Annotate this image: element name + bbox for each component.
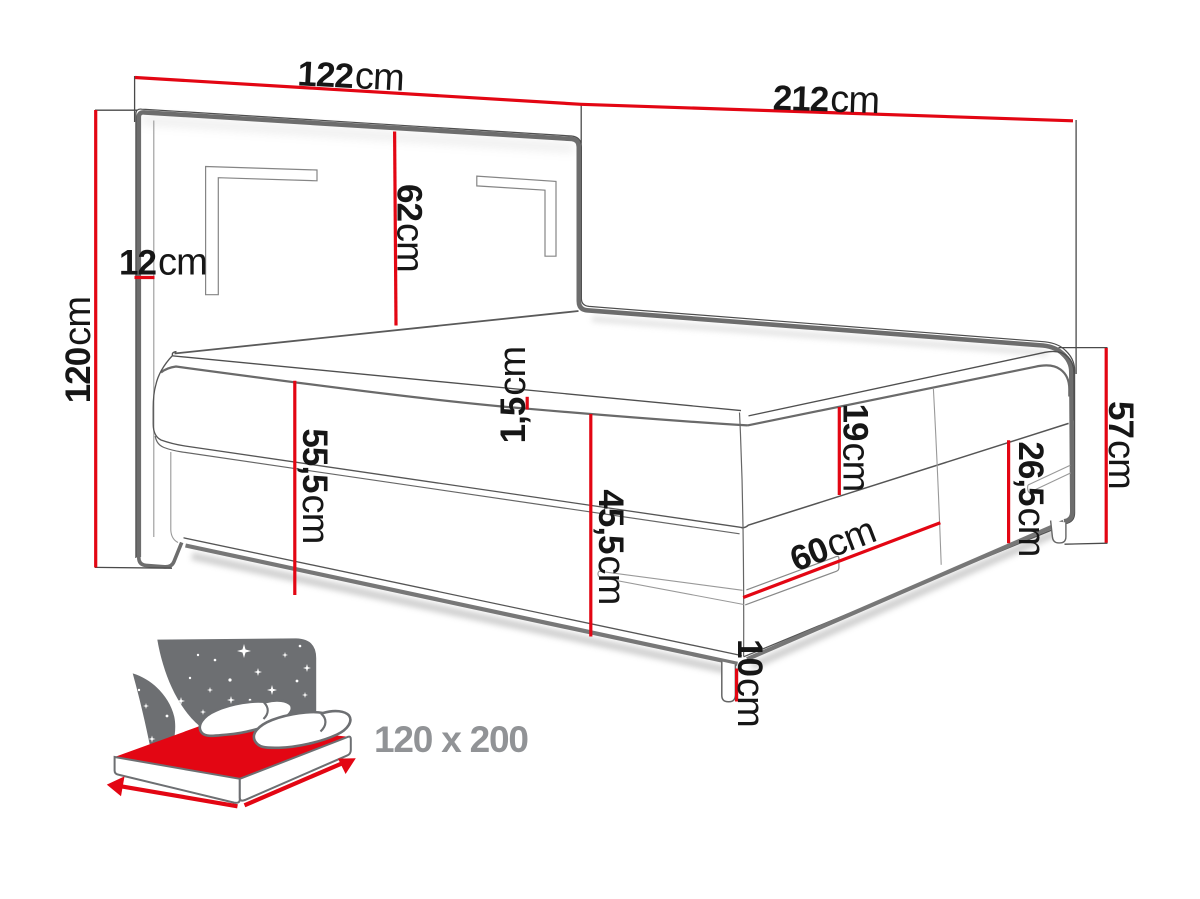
- svg-text:212cm: 212cm: [772, 77, 880, 123]
- svg-text:57cm: 57cm: [1100, 401, 1142, 489]
- svg-text:26,5cm: 26,5cm: [1010, 441, 1052, 556]
- svg-text:12cm: 12cm: [119, 241, 207, 283]
- svg-text:122cm: 122cm: [297, 52, 405, 99]
- svg-text:19cm: 19cm: [835, 404, 877, 492]
- svg-text:45,5cm: 45,5cm: [590, 489, 632, 604]
- svg-text:1,5cm: 1,5cm: [492, 347, 534, 444]
- svg-text:120 x 200: 120 x 200: [374, 719, 528, 760]
- svg-text:10cm: 10cm: [729, 639, 771, 727]
- svg-text:55,5cm: 55,5cm: [294, 428, 336, 543]
- svg-text:62cm: 62cm: [389, 184, 431, 272]
- svg-text:120cm: 120cm: [57, 297, 99, 403]
